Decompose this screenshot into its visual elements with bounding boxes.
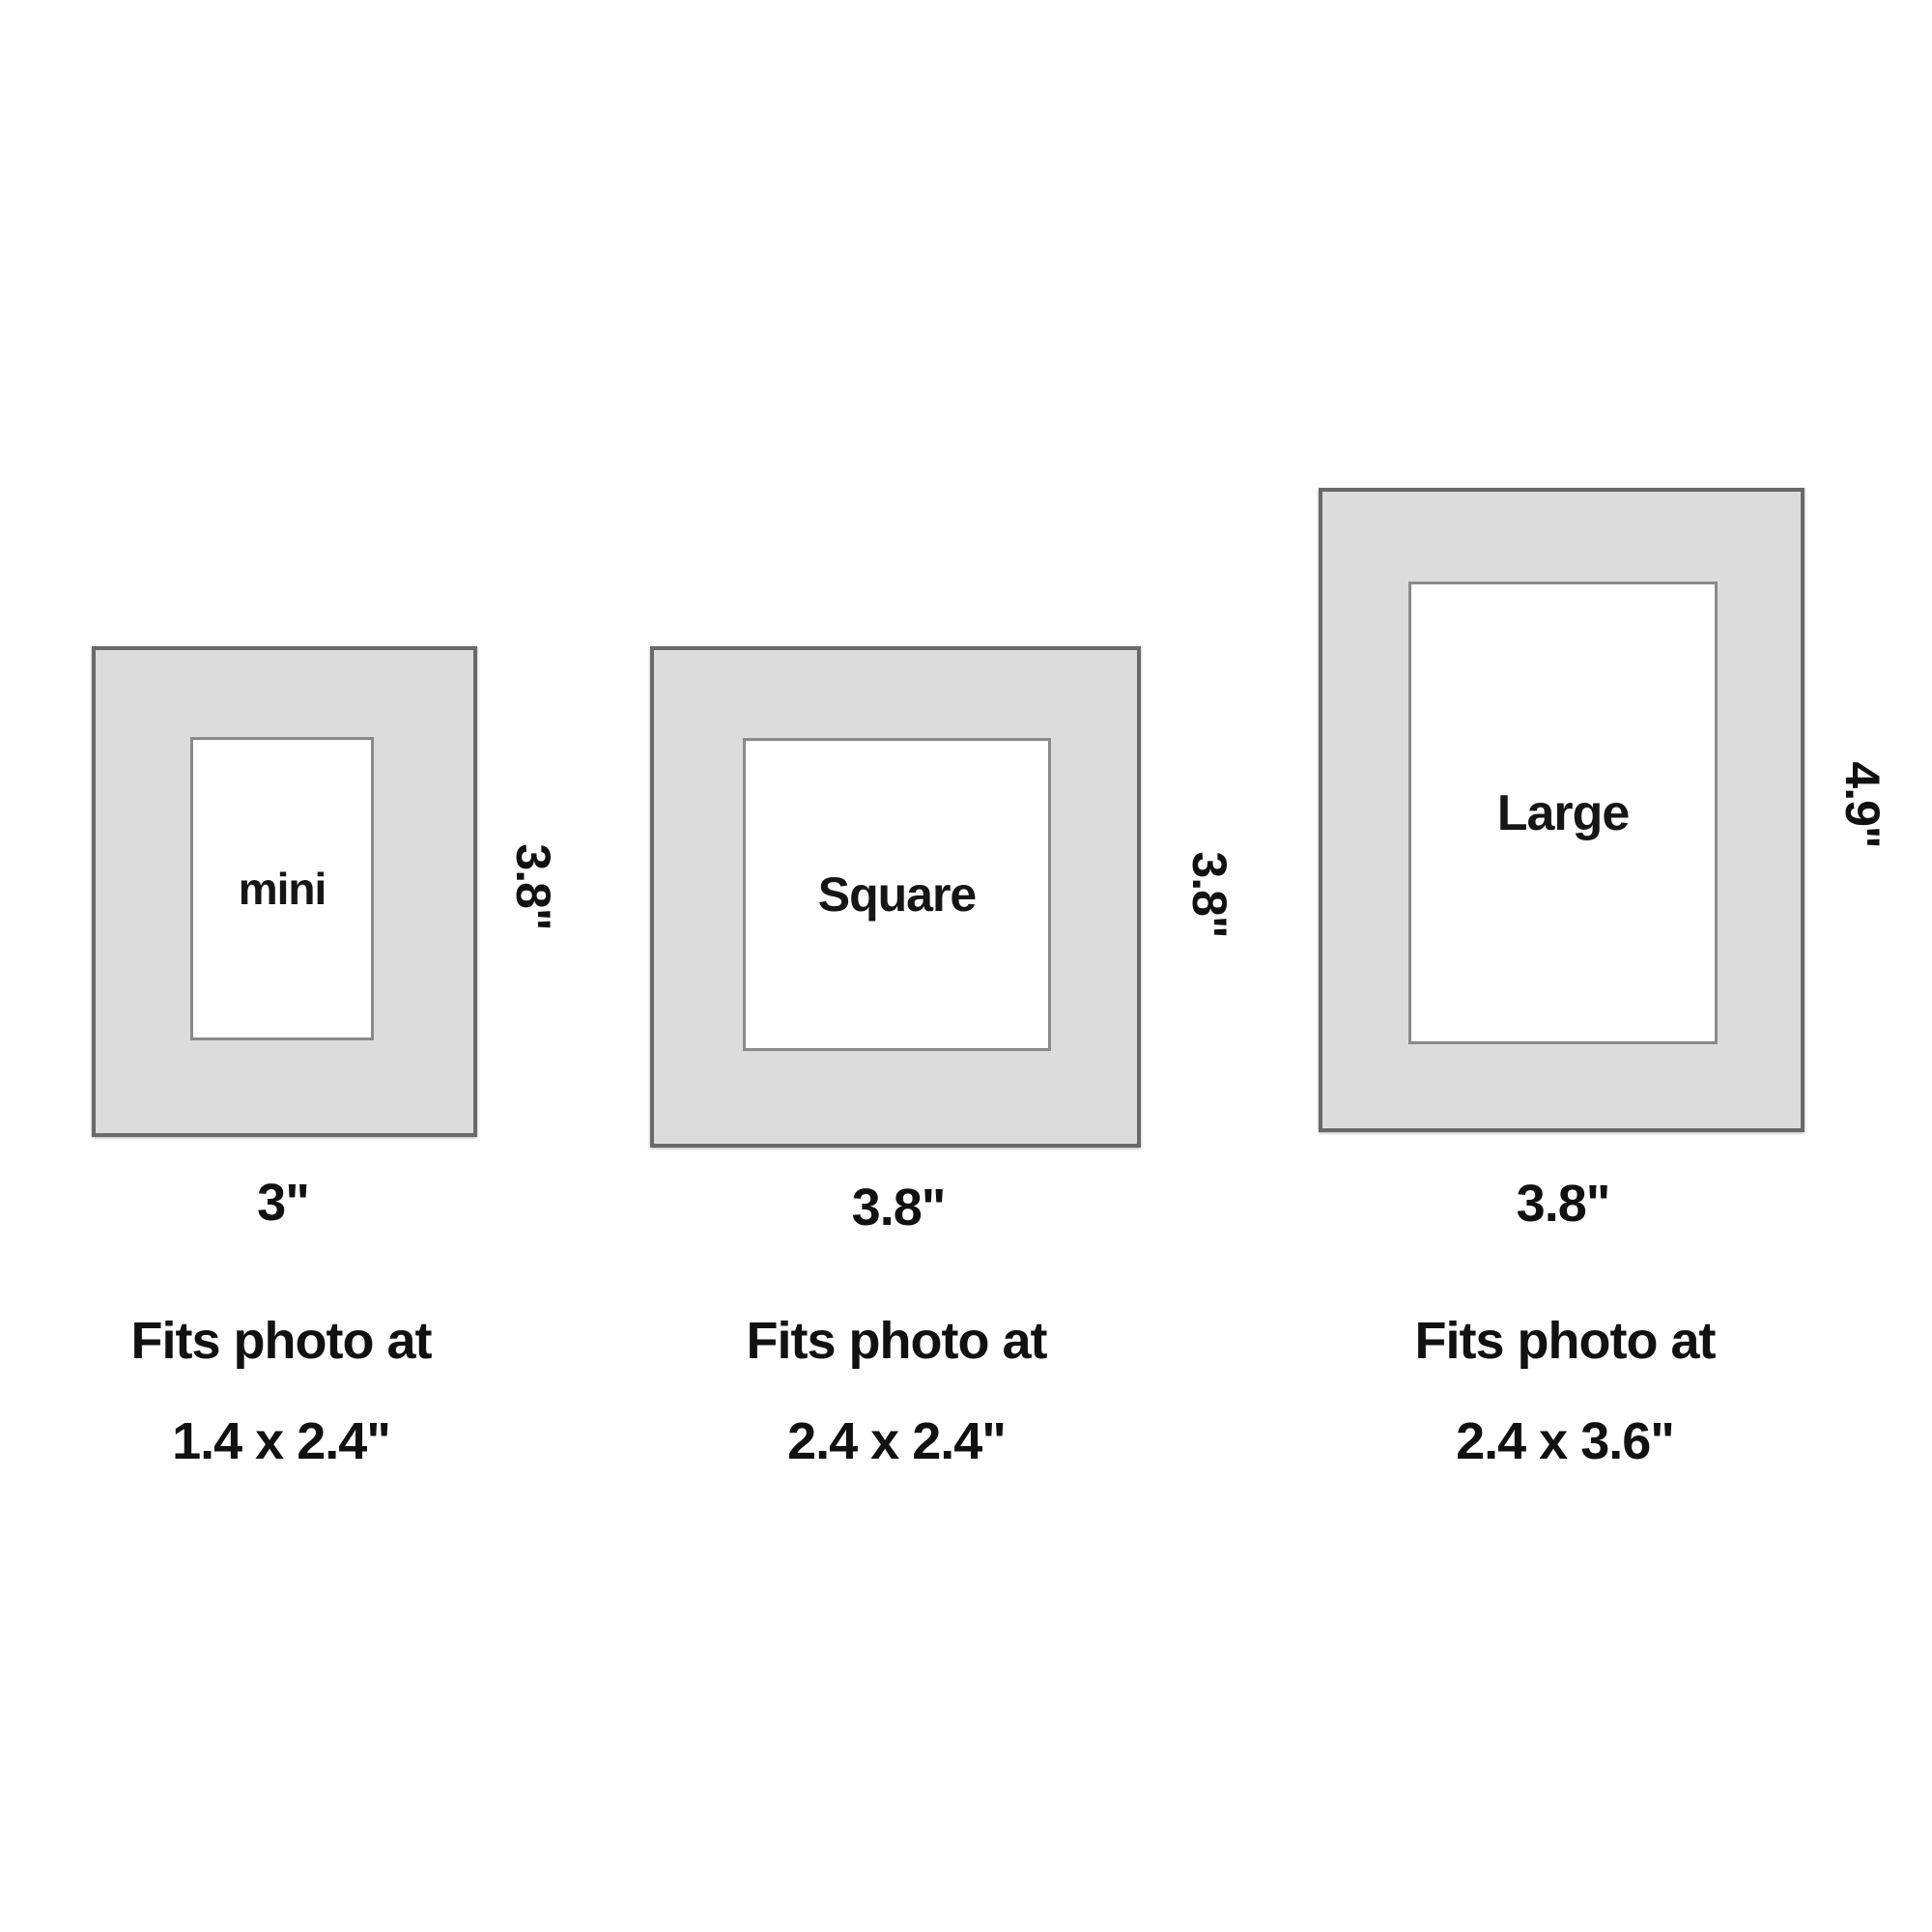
- large-fits-size: 2.4 x 3.6": [1456, 1411, 1674, 1471]
- mini-photo-opening: mini: [190, 737, 374, 1040]
- square-height-dimension: 3.8": [1181, 851, 1237, 937]
- large-height-dimension: 4.9": [1834, 761, 1890, 847]
- mini-fits-caption: Fits photo at: [131, 1311, 432, 1371]
- mat-size-diagram: mini 3.8" 3" Fits photo at 1.4 x 2.4" Sq…: [0, 0, 1932, 1932]
- large-size-name: Large: [1497, 784, 1630, 842]
- mini-fits-size: 1.4 x 2.4": [172, 1411, 390, 1471]
- square-size-name: Square: [818, 867, 977, 923]
- square-mat-board: Square: [650, 646, 1141, 1148]
- mini-size-name: mini: [239, 863, 327, 915]
- square-fits-caption: Fits photo at: [747, 1311, 1047, 1371]
- square-width-dimension: 3.8": [852, 1178, 946, 1237]
- large-fits-caption: Fits photo at: [1415, 1311, 1716, 1371]
- large-width-dimension: 3.8": [1517, 1174, 1610, 1234]
- large-mat-board: Large: [1319, 488, 1804, 1132]
- mini-width-dimension: 3": [257, 1173, 309, 1233]
- square-fits-size: 2.4 x 2.4": [787, 1411, 1006, 1471]
- mini-mat-board: mini: [92, 646, 477, 1137]
- square-photo-opening: Square: [743, 738, 1051, 1051]
- large-photo-opening: Large: [1408, 582, 1718, 1044]
- mini-height-dimension: 3.8": [505, 843, 561, 929]
